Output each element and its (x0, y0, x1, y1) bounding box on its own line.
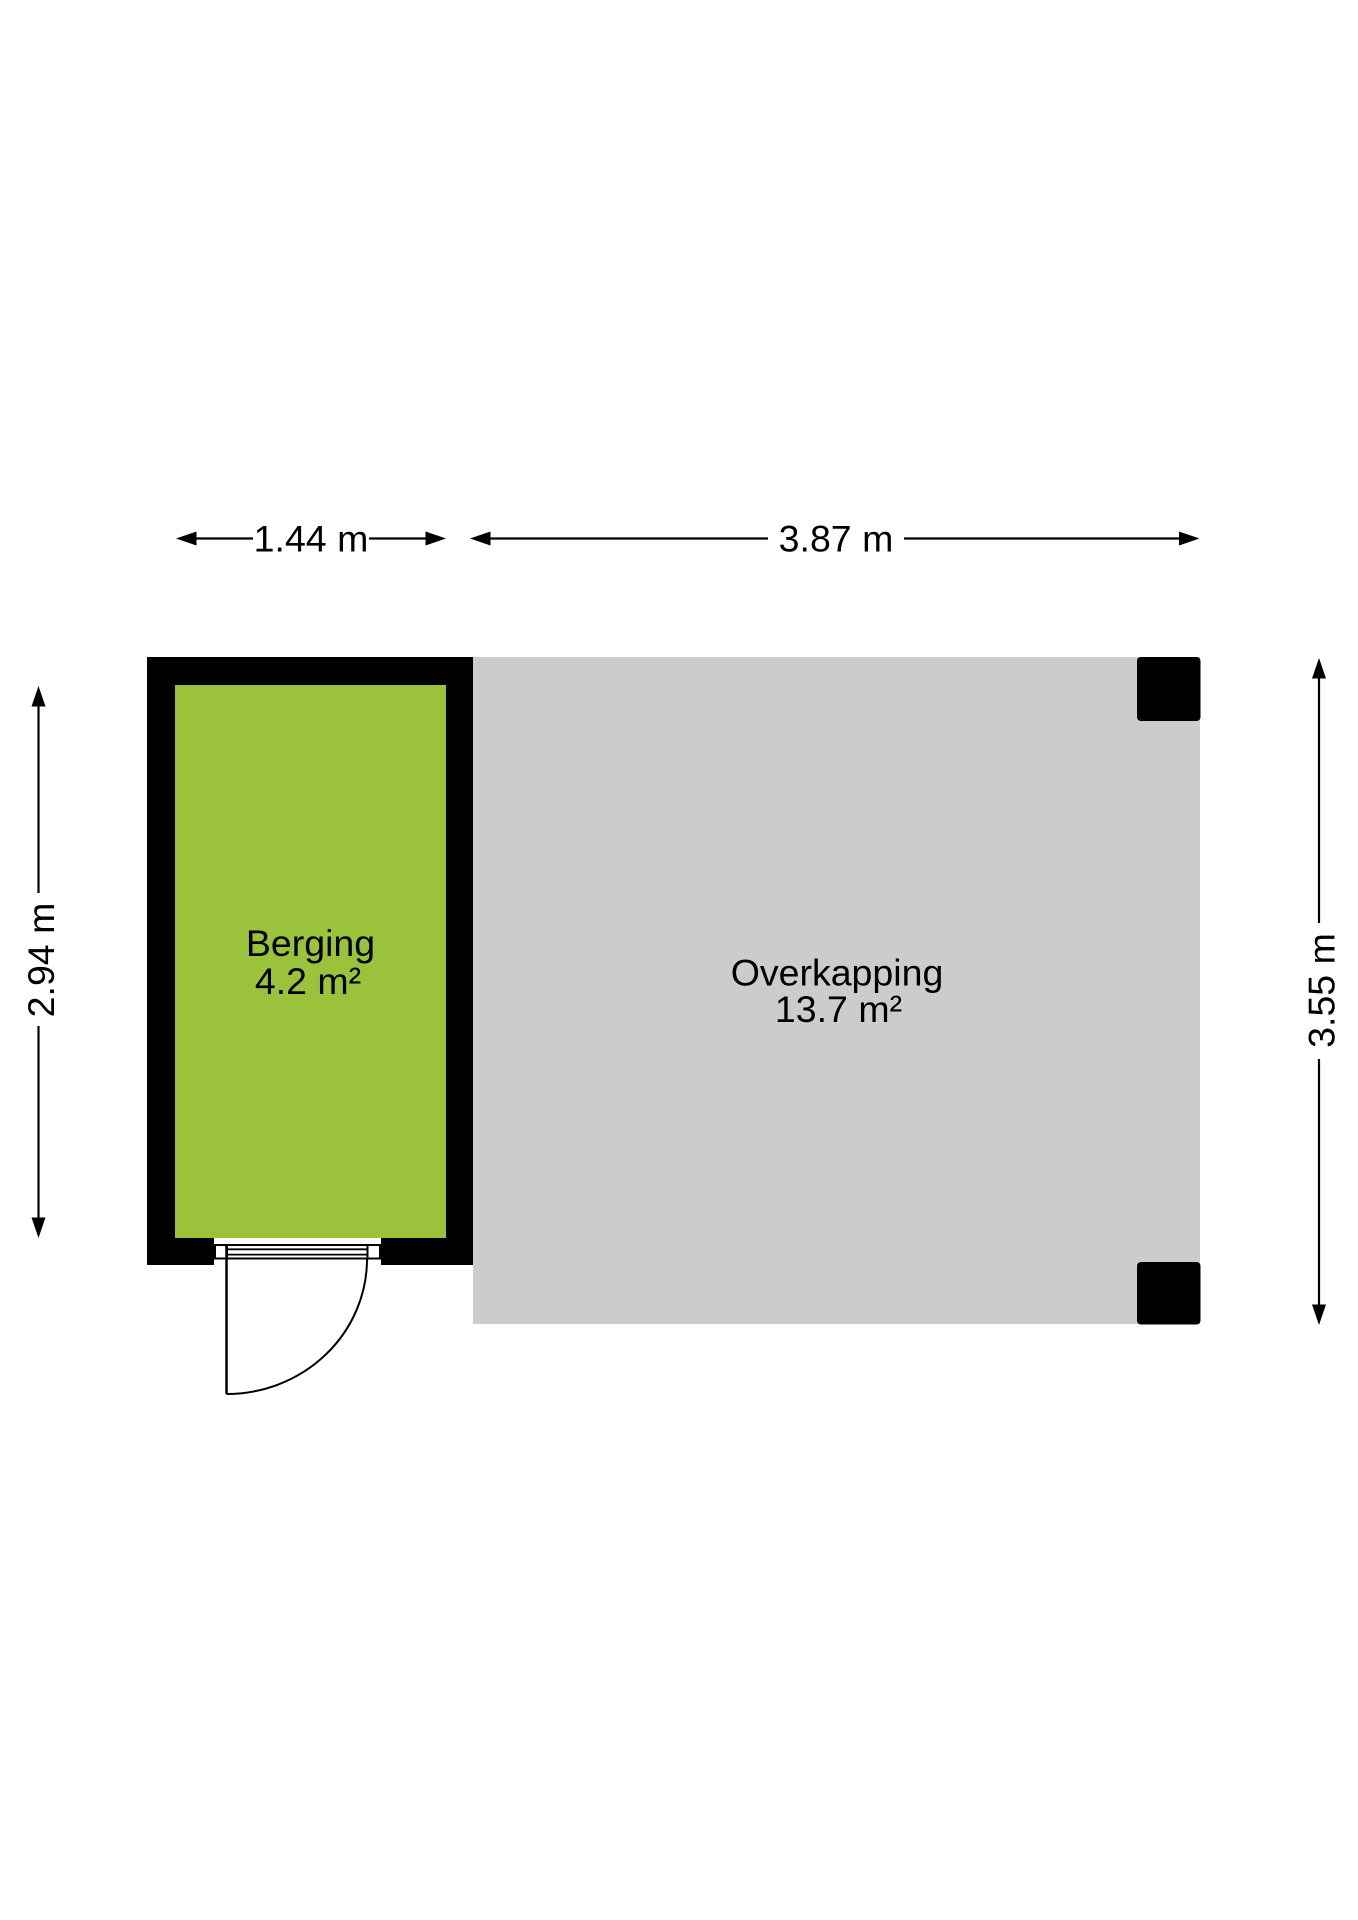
svg-text:13.7 m²: 13.7 m² (775, 988, 902, 1030)
svg-text:3.87 m: 3.87 m (779, 518, 894, 560)
svg-text:1.44 m: 1.44 m (254, 518, 369, 560)
svg-text:2.94 m: 2.94 m (20, 903, 62, 1018)
svg-text:Berging: Berging (246, 922, 375, 964)
svg-text:3.55 m: 3.55 m (1301, 933, 1343, 1048)
svg-text:4.2 m²: 4.2 m² (255, 960, 361, 1002)
